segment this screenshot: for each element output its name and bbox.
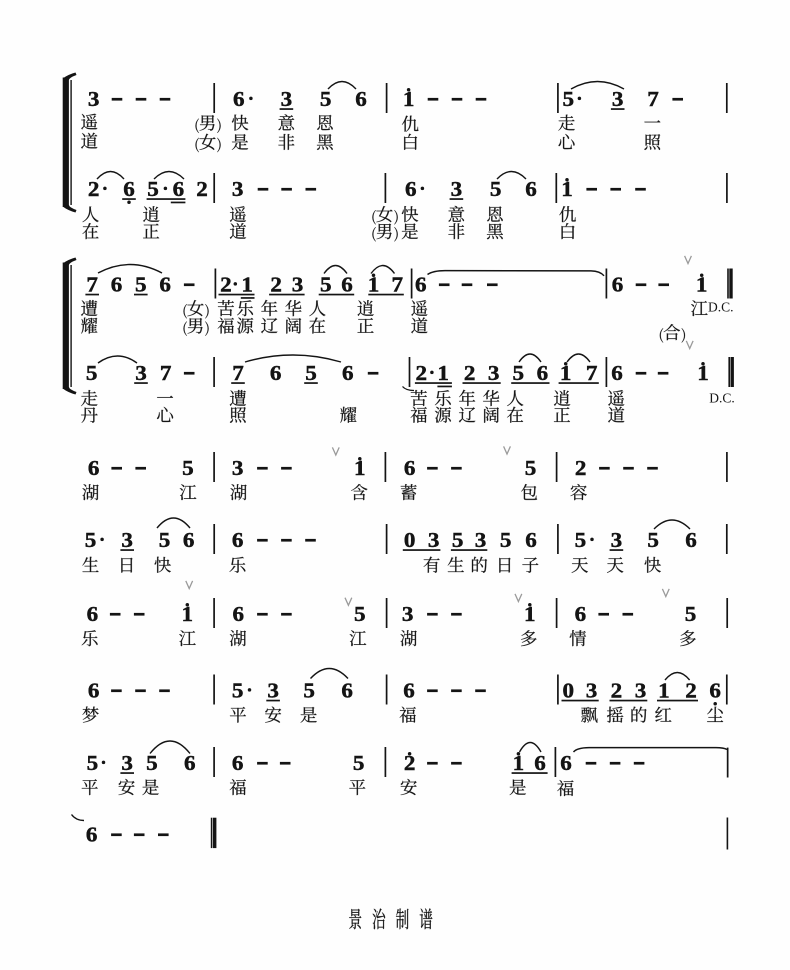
svg-text:6: 6 — [534, 751, 546, 775]
svg-text:6: 6 — [88, 456, 100, 480]
svg-text:6: 6 — [232, 528, 244, 552]
svg-text:6: 6 — [111, 272, 123, 296]
svg-text:5: 5 — [86, 361, 98, 385]
svg-text:6: 6 — [525, 177, 537, 201]
svg-text:6: 6 — [183, 528, 195, 552]
svg-text:6: 6 — [270, 361, 282, 385]
svg-text:5: 5 — [353, 751, 365, 775]
svg-text:6: 6 — [159, 272, 171, 296]
svg-text:2: 2 — [416, 361, 428, 385]
svg-text:7: 7 — [86, 272, 98, 296]
svg-text:5: 5 — [452, 528, 464, 552]
svg-text:5: 5 — [159, 528, 171, 552]
svg-text:6: 6 — [404, 456, 416, 480]
svg-text:D.C.: D.C. — [709, 391, 735, 406]
svg-text:5: 5 — [146, 751, 158, 775]
svg-text:5: 5 — [575, 528, 587, 552]
svg-text:5: 5 — [87, 751, 99, 775]
svg-text:3: 3 — [475, 528, 487, 552]
svg-text:5: 5 — [354, 602, 366, 626]
svg-text:2: 2 — [196, 177, 208, 201]
svg-text:6: 6 — [405, 177, 417, 201]
svg-text:7: 7 — [160, 361, 172, 385]
svg-text:5: 5 — [182, 456, 194, 480]
svg-text:3: 3 — [88, 87, 100, 111]
svg-text:6: 6 — [232, 751, 244, 775]
svg-text:6: 6 — [537, 361, 549, 385]
svg-text:6: 6 — [341, 678, 353, 702]
svg-text:6: 6 — [685, 528, 697, 552]
svg-text:6: 6 — [709, 678, 721, 702]
svg-text:3: 3 — [488, 361, 500, 385]
svg-text:2: 2 — [464, 361, 476, 385]
svg-text:0: 0 — [404, 528, 416, 552]
svg-text:3: 3 — [281, 87, 293, 111]
svg-text:6: 6 — [403, 678, 415, 702]
svg-text:7: 7 — [232, 361, 244, 385]
svg-text:3: 3 — [232, 456, 244, 480]
svg-text:2: 2 — [220, 272, 232, 296]
svg-text:5: 5 — [525, 456, 537, 480]
svg-text:3: 3 — [232, 177, 244, 201]
svg-text:6: 6 — [612, 272, 624, 296]
svg-text:5: 5 — [563, 87, 575, 111]
svg-text:1: 1 — [241, 272, 253, 296]
svg-text:5: 5 — [513, 361, 525, 385]
svg-text:5: 5 — [320, 272, 332, 296]
svg-text:2: 2 — [88, 177, 100, 201]
svg-text:6: 6 — [233, 87, 245, 111]
svg-text:5: 5 — [500, 528, 512, 552]
svg-text:6: 6 — [184, 751, 196, 775]
svg-text:3: 3 — [586, 678, 598, 702]
svg-text:2: 2 — [611, 678, 623, 702]
svg-text:5: 5 — [303, 678, 315, 702]
svg-text:6: 6 — [341, 272, 353, 296]
svg-text:2: 2 — [270, 272, 282, 296]
svg-text:2: 2 — [575, 456, 587, 480]
svg-text:6: 6 — [575, 602, 587, 626]
svg-text:5: 5 — [147, 177, 159, 201]
svg-text:5: 5 — [232, 678, 244, 702]
svg-text:D.C.: D.C. — [708, 300, 734, 315]
svg-text:6: 6 — [560, 751, 572, 775]
svg-text:6: 6 — [173, 177, 185, 201]
svg-text:3: 3 — [451, 177, 463, 201]
svg-text:6: 6 — [123, 177, 135, 201]
svg-text:2: 2 — [685, 678, 697, 702]
svg-text:6: 6 — [86, 822, 98, 846]
svg-text:3: 3 — [611, 528, 623, 552]
svg-text:3: 3 — [267, 678, 279, 702]
svg-text:5: 5 — [320, 87, 332, 111]
svg-text:6: 6 — [88, 678, 100, 702]
svg-text:5: 5 — [490, 177, 502, 201]
svg-text:5: 5 — [647, 528, 659, 552]
svg-text:0: 0 — [563, 678, 575, 702]
svg-text:3: 3 — [135, 361, 147, 385]
svg-text:6: 6 — [525, 528, 537, 552]
svg-text:7: 7 — [647, 87, 659, 111]
svg-text:7: 7 — [586, 361, 598, 385]
svg-text:5: 5 — [135, 272, 147, 296]
svg-text:6: 6 — [233, 602, 245, 626]
svg-text:6: 6 — [342, 361, 354, 385]
svg-text:3: 3 — [612, 87, 624, 111]
svg-text:6: 6 — [87, 602, 99, 626]
svg-text:6: 6 — [611, 361, 623, 385]
svg-text:7: 7 — [392, 272, 404, 296]
svg-text:5: 5 — [85, 528, 97, 552]
svg-text:1: 1 — [658, 678, 670, 702]
svg-text:1: 1 — [437, 361, 449, 385]
svg-text:6: 6 — [415, 272, 427, 296]
svg-text:3: 3 — [635, 678, 647, 702]
svg-text:3: 3 — [121, 751, 133, 775]
svg-text:3: 3 — [292, 272, 304, 296]
svg-text:5: 5 — [685, 602, 697, 626]
svg-text:3: 3 — [121, 528, 133, 552]
svg-text:5: 5 — [305, 361, 317, 385]
svg-text:3: 3 — [402, 602, 414, 626]
svg-text:3: 3 — [428, 528, 440, 552]
svg-text:6: 6 — [355, 87, 367, 111]
